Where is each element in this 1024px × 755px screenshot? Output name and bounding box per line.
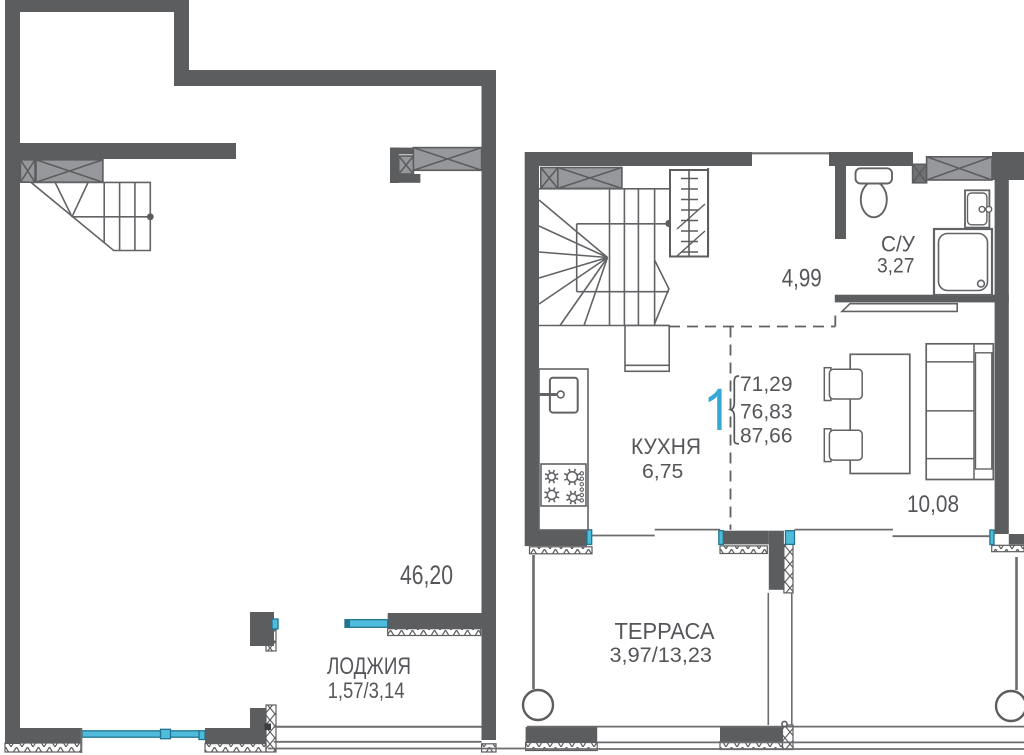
svg-text:3,27: 3,27 <box>877 255 914 278</box>
svg-text:1,57/3,14: 1,57/3,14 <box>328 678 405 703</box>
svg-text:КУХНЯ: КУХНЯ <box>631 434 701 459</box>
svg-text:ТЕРРАСА: ТЕРРАСА <box>615 618 716 644</box>
svg-text:10,08: 10,08 <box>907 491 959 518</box>
svg-text:87,66: 87,66 <box>740 425 793 448</box>
svg-text:4,99: 4,99 <box>782 264 822 292</box>
svg-text:3,97/13,23: 3,97/13,23 <box>610 643 713 667</box>
svg-text:46,20: 46,20 <box>400 560 453 590</box>
svg-text:76,83: 76,83 <box>740 401 793 424</box>
svg-text:С/У: С/У <box>881 232 916 257</box>
svg-text:6,75: 6,75 <box>642 461 683 483</box>
svg-text:ЛОДЖИЯ: ЛОДЖИЯ <box>327 653 411 680</box>
svg-text:71,29: 71,29 <box>740 373 793 396</box>
